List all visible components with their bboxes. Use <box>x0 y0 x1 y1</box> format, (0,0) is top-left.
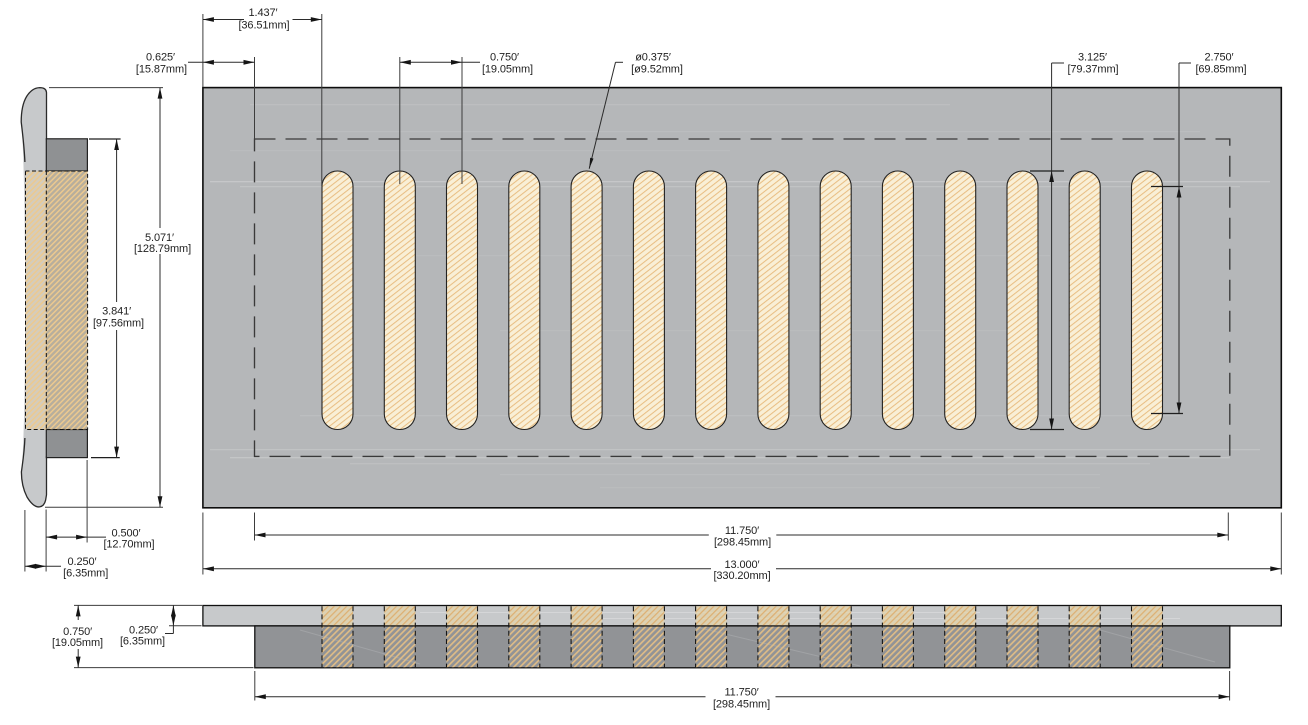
svg-text:11.750′: 11.750′ <box>724 687 758 699</box>
svg-text:5.071′: 5.071′ <box>145 232 174 244</box>
svg-text:[19.05mm]: [19.05mm] <box>52 637 103 649</box>
svg-text:3.841′: 3.841′ <box>102 306 131 318</box>
svg-text:[36.51mm]: [36.51mm] <box>238 20 289 32</box>
svg-text:11.750′: 11.750′ <box>725 525 759 537</box>
svg-text:[15.87mm]: [15.87mm] <box>136 64 187 76</box>
svg-text:0.750′: 0.750′ <box>490 51 519 63</box>
svg-text:[69.85mm]: [69.85mm] <box>1195 64 1246 76</box>
svg-text:[6.35mm]: [6.35mm] <box>120 636 165 648</box>
svg-text:3.125′: 3.125′ <box>1078 51 1107 63</box>
svg-text:1.437′: 1.437′ <box>249 7 278 19</box>
svg-text:13.000′: 13.000′ <box>724 559 759 571</box>
svg-text:[79.37mm]: [79.37mm] <box>1067 64 1118 76</box>
svg-text:[298.45mm]: [298.45mm] <box>713 699 770 711</box>
svg-text:2.750′: 2.750′ <box>1205 51 1234 63</box>
svg-text:0.250′: 0.250′ <box>68 556 97 568</box>
svg-text:[6.35mm]: [6.35mm] <box>63 568 108 580</box>
svg-text:0.625′: 0.625′ <box>146 51 175 63</box>
svg-text:[ø9.52mm]: [ø9.52mm] <box>631 64 683 76</box>
svg-text:ø0.375′: ø0.375′ <box>635 51 671 63</box>
svg-text:[12.70mm]: [12.70mm] <box>103 539 154 551</box>
svg-text:[19.05mm]: [19.05mm] <box>482 64 533 76</box>
svg-text:[330.20mm]: [330.20mm] <box>713 570 770 582</box>
svg-text:[97.56mm]: [97.56mm] <box>93 318 144 330</box>
svg-text:[128.79mm]: [128.79mm] <box>134 243 191 255</box>
svg-text:[298.45mm]: [298.45mm] <box>714 537 771 549</box>
